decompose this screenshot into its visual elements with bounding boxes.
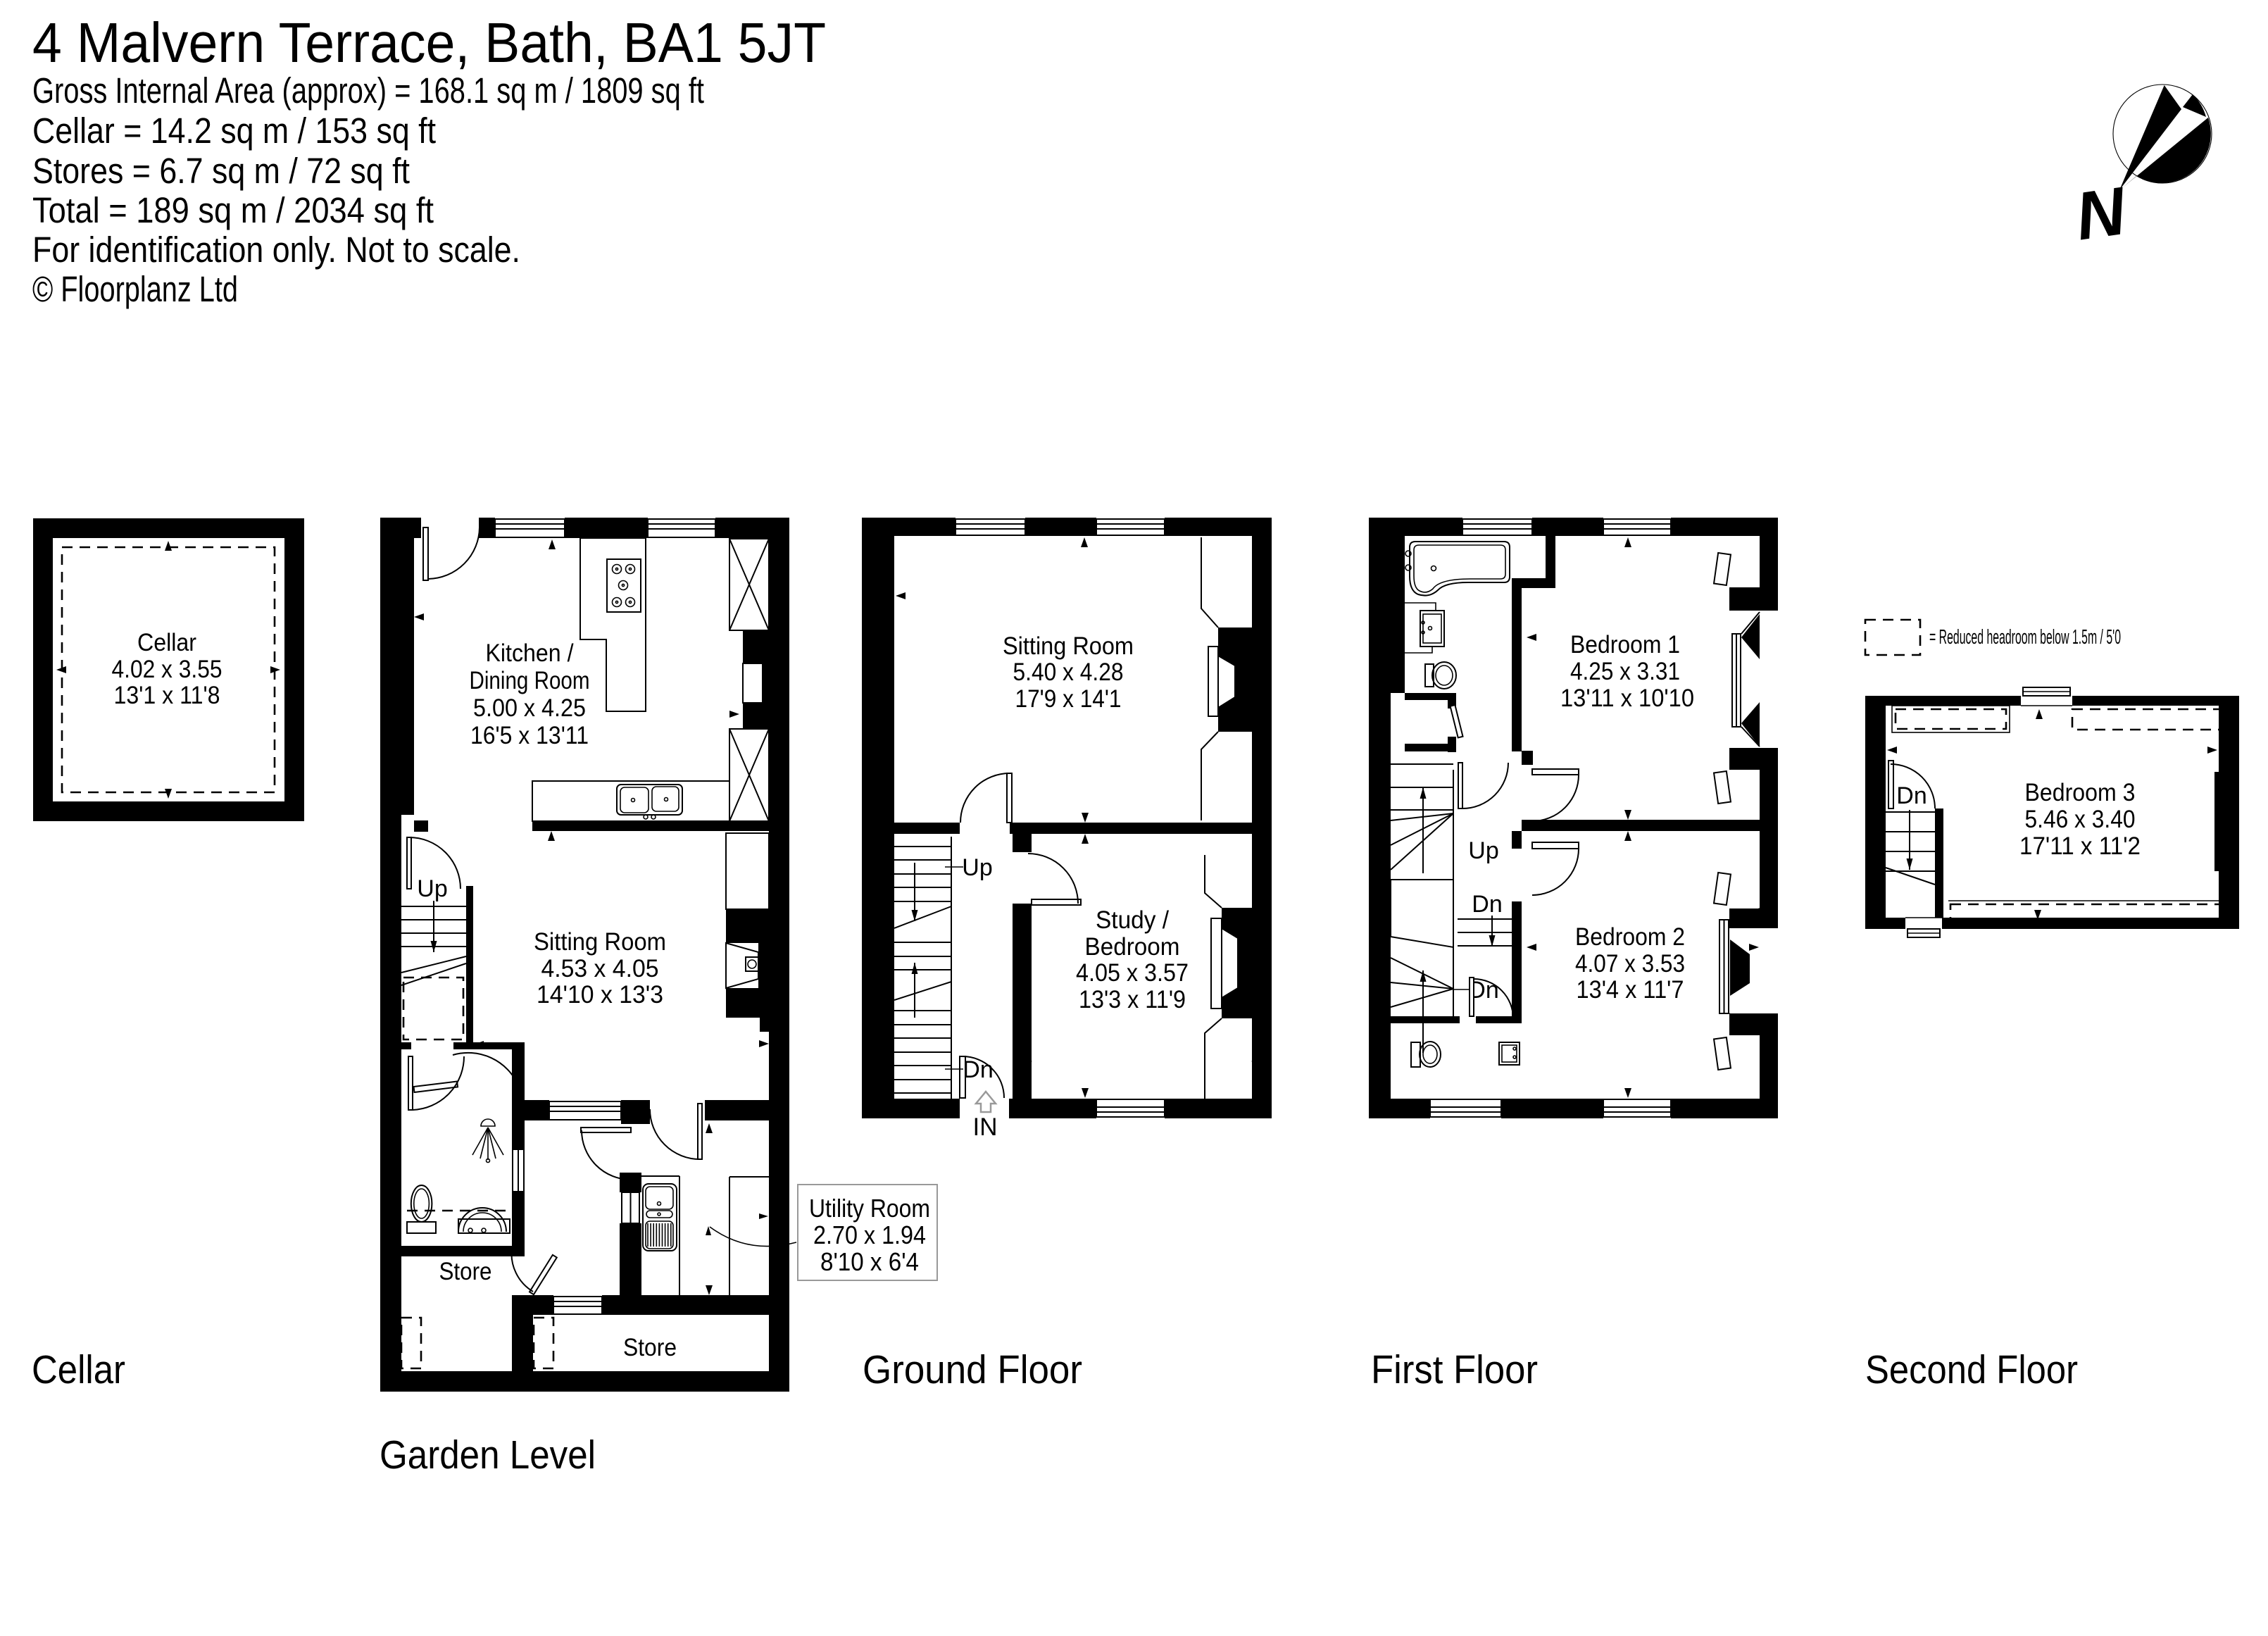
svg-text:Up: Up (962, 854, 992, 881)
svg-text:© Floorplanz Ltd: © Floorplanz Ltd (32, 269, 238, 309)
svg-text:Sitting Room: Sitting Room (534, 928, 666, 956)
svg-text:Up: Up (417, 875, 447, 902)
svg-text:13'11 x 10'10: 13'11 x 10'10 (1560, 685, 1694, 712)
svg-text:Kitchen /: Kitchen / (486, 639, 574, 667)
svg-text:5.00 x 4.25: 5.00 x 4.25 (473, 694, 586, 722)
svg-text:13'1 x 11'8: 13'1 x 11'8 (114, 682, 220, 709)
svg-text:Bedroom: Bedroom (1085, 933, 1180, 961)
svg-text:4.05 x 3.57: 4.05 x 3.57 (1076, 959, 1189, 987)
svg-text:13'3 x 11'9: 13'3 x 11'9 (1079, 986, 1186, 1013)
svg-text:17'11 x 11'2: 17'11 x 11'2 (2019, 832, 2141, 860)
svg-text:Dining Room: Dining Room (470, 667, 590, 694)
svg-text:IN: IN (973, 1113, 998, 1141)
svg-text:Utility Room: Utility Room (809, 1194, 930, 1223)
svg-text:13'4 x 11'7: 13'4 x 11'7 (1577, 976, 1684, 1004)
svg-text:= Reduced headroom below 1.5m: = Reduced headroom below 1.5m / 5'0 (1929, 626, 2121, 649)
svg-text:Dn: Dn (1472, 891, 1502, 918)
svg-text:Bedroom 1: Bedroom 1 (1570, 631, 1680, 658)
svg-text:4.02 x 3.55: 4.02 x 3.55 (112, 656, 223, 683)
svg-text:Cellar: Cellar (32, 1347, 125, 1392)
svg-text:Up: Up (1468, 837, 1498, 864)
svg-text:5.46 x 3.40: 5.46 x 3.40 (2025, 806, 2136, 833)
svg-text:4.53 x 4.05: 4.53 x 4.05 (541, 955, 659, 982)
svg-text:4.25 x 3.31: 4.25 x 3.31 (1570, 658, 1680, 685)
svg-text:Dn: Dn (1896, 782, 1926, 809)
svg-text:Cellar: Cellar (137, 629, 196, 656)
svg-text:Cellar = 14.2 sq m / 153 sq ft: Cellar = 14.2 sq m / 153 sq ft (32, 111, 436, 151)
svg-text:8'10 x 6'4: 8'10 x 6'4 (820, 1247, 919, 1276)
svg-text:Store: Store (623, 1334, 677, 1361)
svg-text:Sitting Room: Sitting Room (1003, 632, 1134, 660)
svg-text:Dn: Dn (963, 1056, 993, 1083)
svg-text:14'10 x 13'3: 14'10 x 13'3 (537, 981, 663, 1009)
svg-text:Stores = 6.7 sq m / 72 sq ft: Stores = 6.7 sq m / 72 sq ft (32, 151, 410, 191)
svg-text:4.07 x 3.53: 4.07 x 3.53 (1575, 950, 1685, 978)
svg-text:For identification only. Not t: For identification only. Not to scale. (32, 230, 520, 270)
svg-text:4 Malvern Terrace, Bath, BA1 5: 4 Malvern Terrace, Bath, BA1 5JT (32, 11, 826, 74)
svg-text:2.70 x 1.94: 2.70 x 1.94 (813, 1220, 926, 1249)
svg-text:5.40 x 4.28: 5.40 x 4.28 (1013, 658, 1124, 686)
svg-text:Second Floor: Second Floor (1865, 1347, 2078, 1392)
svg-text:Total = 189 sq m / 2034 sq ft: Total = 189 sq m / 2034 sq ft (32, 190, 434, 230)
svg-text:Bedroom 3: Bedroom 3 (2025, 779, 2136, 806)
svg-text:Study /: Study / (1096, 906, 1169, 934)
svg-text:17'9 x 14'1: 17'9 x 14'1 (1015, 685, 1122, 713)
svg-text:Bedroom 2: Bedroom 2 (1575, 923, 1685, 951)
svg-text:Ground Floor: Ground Floor (863, 1347, 1082, 1392)
svg-text:Gross Internal Area (approx) =: Gross Internal Area (approx) = 168.1 sq … (32, 70, 704, 111)
svg-text:Store: Store (439, 1258, 492, 1285)
svg-text:Garden Level: Garden Level (380, 1432, 596, 1478)
svg-text:First Floor: First Floor (1371, 1347, 1538, 1392)
svg-text:16'5 x 13'11: 16'5 x 13'11 (470, 722, 589, 749)
